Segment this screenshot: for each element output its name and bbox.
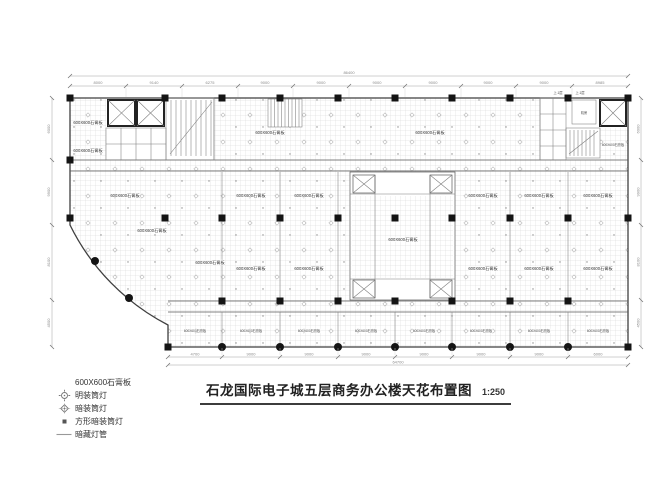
dim-value: 9000	[373, 80, 383, 85]
title-text: 石龙国际电子城五层商务办公楼天花布置图	[206, 383, 472, 398]
tile-label: 600X600石膏板	[583, 192, 613, 199]
dim-value: 9000	[420, 352, 430, 357]
dim-value: 6000	[594, 352, 604, 357]
dim-value: 9000	[477, 352, 487, 357]
tile-label: 600X600石膏板	[184, 328, 207, 333]
dim-value: 9140	[150, 80, 160, 85]
legend-label: 方形暗装筒灯	[75, 416, 123, 427]
legend-item: 方形暗装筒灯	[56, 415, 131, 428]
dim-bottom-extensions	[222, 348, 568, 355]
dim-value: 9000	[540, 80, 550, 85]
dim-value: 4700	[191, 352, 201, 357]
title-scale: 1:250	[482, 387, 505, 397]
tile-label: 600X600石膏板	[524, 265, 554, 272]
dim-value: 9000	[429, 80, 439, 85]
tile-label: 600X600石膏板	[587, 328, 610, 333]
dim-value: 8985	[596, 80, 606, 85]
elevator-icon	[108, 100, 135, 126]
tile-label: 600X600石膏板	[73, 119, 103, 126]
tile-label: 600X600石膏板	[468, 192, 498, 199]
tile-label: 600X600石膏板	[73, 147, 103, 154]
dim-value: 6000	[46, 124, 51, 134]
legend-label: 明装筒灯	[75, 390, 107, 401]
legend-label: 暗藏灯管	[75, 429, 107, 440]
elevator-icon	[137, 100, 164, 126]
tile-label: 600X600石膏板	[355, 328, 378, 333]
legend-item: 暗藏灯管	[56, 428, 131, 441]
tile-label: 600X600石膏板	[524, 192, 554, 199]
concealed-light-tube-icon	[56, 428, 72, 441]
legend-item: 明装筒灯	[56, 389, 131, 402]
legend-item: 600X600石膏板	[56, 376, 131, 389]
stair-direction-label: 上.1层	[575, 90, 584, 95]
dim-value: 9000	[362, 352, 372, 357]
dim-bottom-total: 64700	[392, 360, 404, 365]
tile-label: 600X600石膏板	[294, 192, 324, 199]
tile-label: 600X600石膏板	[255, 129, 285, 136]
tile-label: 600X600石膏板	[195, 259, 225, 266]
dim-value: 8100	[46, 257, 51, 267]
drawing-sheet: 600X600石膏板 600X600石膏板 600X600石膏板 600X600…	[0, 0, 660, 494]
dim-top-total: 86400	[343, 70, 355, 75]
dim-value: 9000	[261, 80, 271, 85]
legend: 600X600石膏板 明装筒灯 暗装筒灯 方形暗装筒灯	[56, 376, 131, 441]
surface-downlight-icon	[56, 389, 72, 402]
tile-label: 600X600石膏板	[236, 265, 266, 272]
tile-label: 600X600石膏板	[528, 328, 551, 333]
tile-label: 600X600石膏板	[240, 328, 263, 333]
dim-value: 6000	[636, 124, 641, 134]
stair-direction-label: 上.1层	[553, 90, 562, 95]
dim-value: 9000	[305, 352, 315, 357]
recessed-downlight-icon	[56, 402, 72, 415]
tile-label: 600X600石膏板	[236, 192, 266, 199]
tile-label: 600X600石膏板	[602, 142, 625, 147]
dim-value: 4500	[636, 318, 641, 328]
square-recessed-downlight-icon	[56, 415, 72, 428]
elevator-icon	[600, 100, 626, 126]
machine-room-label: 机房	[581, 110, 587, 115]
dim-value: 8000	[94, 80, 104, 85]
tile-label: 600X600石膏板	[468, 265, 498, 272]
tile-label: 600X600石膏板	[413, 328, 436, 333]
dim-value: 6275	[206, 80, 216, 85]
dim-value: 9000	[484, 80, 494, 85]
dim-value: 9900	[636, 187, 641, 197]
tile-label: 600X600石膏板	[137, 227, 167, 234]
dim-value: 4500	[46, 318, 51, 328]
dim-value: 9000	[535, 352, 545, 357]
drawing-title: 石龙国际电子城五层商务办公楼天花布置图1:250	[200, 379, 511, 405]
dim-value: 9900	[46, 187, 51, 197]
dim-value: 9000	[247, 352, 257, 357]
tile-label: 600X600石膏板	[470, 328, 493, 333]
dim-value: 8100	[636, 257, 641, 267]
legend-label: 暗装筒灯	[75, 403, 107, 414]
tile-label: 600X600石膏板	[294, 265, 324, 272]
dim-value: 9000	[317, 80, 327, 85]
tile-label: 600X600石膏板	[388, 236, 418, 243]
tile-label: 600X600石膏板	[415, 129, 445, 136]
dim-top-extensions	[126, 88, 572, 97]
tile-label: 600X600石膏板	[298, 328, 321, 333]
legend-label: 600X600石膏板	[75, 377, 131, 388]
tile-label: 600X600石膏板	[583, 265, 613, 272]
legend-item: 暗装筒灯	[56, 402, 131, 415]
tile-label: 600X600石膏板	[110, 192, 140, 199]
